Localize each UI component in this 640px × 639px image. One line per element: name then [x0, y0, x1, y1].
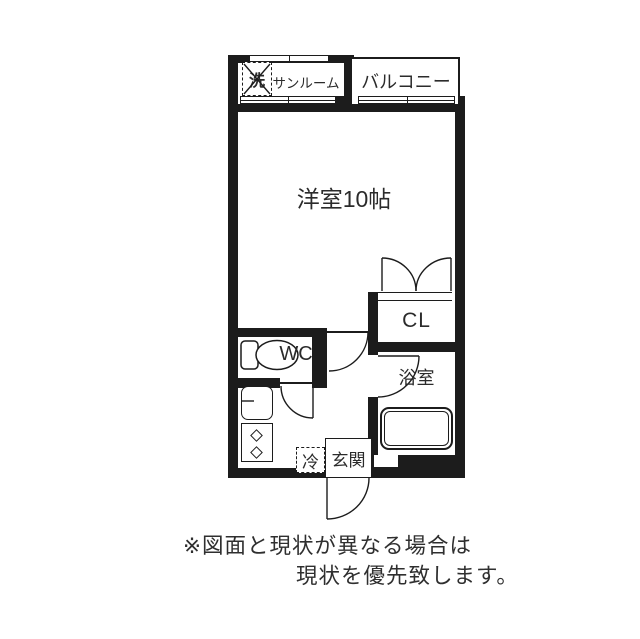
balcony-sliding-window-icon	[358, 96, 455, 104]
sunroom-label: サンルーム	[270, 73, 342, 91]
wc-door-arc	[281, 386, 313, 418]
balcony-label: バルコニー	[354, 69, 458, 93]
entrance-label: 玄関	[332, 446, 366, 471]
bathtub-inner-line	[384, 411, 449, 446]
wc-doorway-line	[280, 382, 313, 384]
disclaimer-line-2: 現状を優先致します。	[296, 559, 519, 590]
sunroom-top-window-icon	[250, 55, 328, 62]
refrigerator-label: 冷	[302, 448, 319, 473]
main-room-door-arc	[329, 332, 368, 371]
closet-door-arc	[382, 258, 416, 291]
washer-label: 洗	[249, 67, 265, 91]
wall-closet-bottom	[368, 342, 465, 352]
bathtub-icon	[380, 407, 453, 450]
toilet-tank-icon	[241, 341, 258, 369]
main-room-label: 洋室10帖	[238, 184, 450, 210]
window-pane-tick	[288, 97, 289, 103]
closet-door-arc	[416, 258, 451, 291]
refrigerator-icon: 冷	[296, 447, 325, 473]
main-room-doorway-line	[327, 331, 368, 333]
window-pane-tick	[289, 56, 290, 61]
wall-left	[228, 55, 238, 478]
window-pane-tick	[407, 97, 408, 103]
entrance-box: 玄関	[325, 438, 372, 478]
floor-plan: 洗 冷 玄関	[0, 0, 640, 639]
disclaimer-line-1: ※図面と現状が異なる場合は	[183, 529, 472, 560]
entry-door-arc	[327, 478, 369, 519]
wc-label: WC	[277, 343, 315, 365]
kitchen-sink-icon	[241, 386, 273, 420]
closet-label: CL	[378, 308, 455, 334]
entrance-step-inset	[374, 455, 398, 467]
sunroom-lower-window-icon	[240, 96, 336, 104]
washing-machine-icon: 洗	[242, 62, 272, 96]
closet-opening	[378, 292, 452, 301]
bathroom-label: 浴室	[378, 366, 455, 388]
wall-right	[455, 104, 465, 478]
